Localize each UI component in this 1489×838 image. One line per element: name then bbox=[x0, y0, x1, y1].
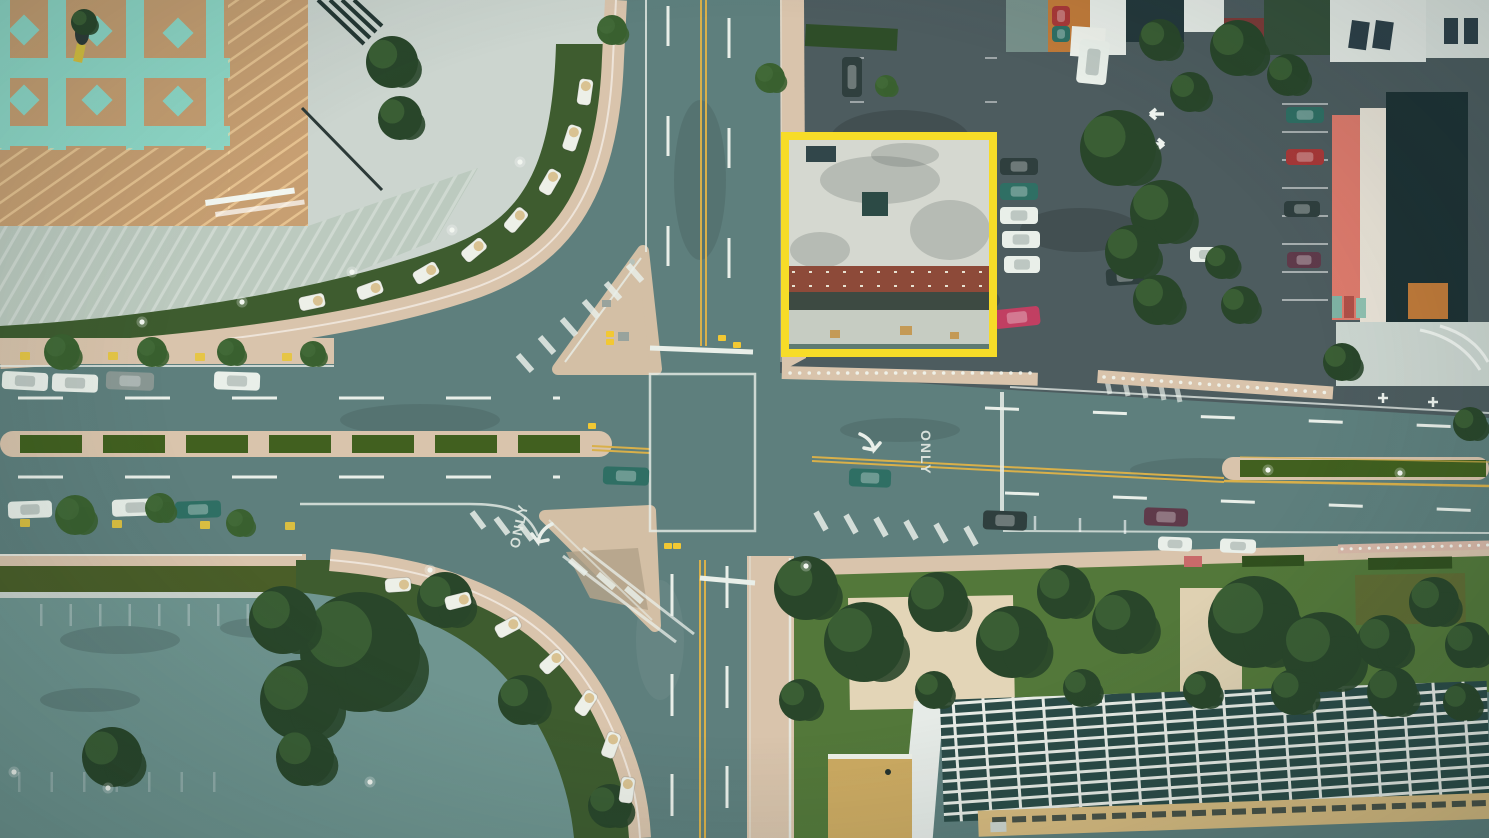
car bbox=[214, 371, 261, 391]
hedge-strip bbox=[0, 566, 300, 592]
curb-marker bbox=[20, 519, 30, 527]
walkway-canopy bbox=[385, 577, 412, 593]
traffic-signal bbox=[606, 331, 614, 337]
red-pavement-patch bbox=[1184, 556, 1202, 567]
car bbox=[1286, 107, 1324, 123]
car bbox=[842, 57, 862, 97]
light-pole bbox=[425, 565, 436, 576]
curb-marker bbox=[108, 352, 118, 360]
car bbox=[983, 510, 1028, 531]
tree bbox=[1445, 622, 1489, 668]
traffic-signal bbox=[673, 543, 681, 549]
light-pole bbox=[347, 267, 358, 278]
utility-box bbox=[602, 300, 611, 307]
car bbox=[1076, 39, 1110, 86]
traffic-signal bbox=[606, 339, 614, 345]
car bbox=[1000, 207, 1038, 224]
car bbox=[849, 468, 892, 487]
curb-marker bbox=[285, 522, 295, 530]
car bbox=[1052, 6, 1070, 26]
roof-structure bbox=[806, 146, 836, 162]
curb-marker bbox=[20, 352, 30, 360]
curb-marker bbox=[195, 353, 205, 361]
hedge bbox=[1368, 557, 1452, 570]
median-hedges bbox=[16, 435, 592, 453]
walkway-canopy bbox=[618, 776, 635, 804]
light-pole bbox=[237, 297, 248, 308]
light-pole bbox=[9, 767, 20, 778]
shadow-band bbox=[788, 292, 992, 310]
car bbox=[1000, 158, 1038, 175]
light-pole bbox=[515, 157, 526, 168]
facade-tiles bbox=[1332, 296, 1366, 318]
orange-roof-section bbox=[1408, 283, 1448, 319]
walk-edge bbox=[0, 592, 300, 598]
traffic-signal bbox=[733, 342, 741, 348]
walkway-canopy bbox=[576, 78, 593, 106]
traffic-signal bbox=[588, 423, 596, 429]
tan-building bbox=[828, 754, 912, 838]
car bbox=[1002, 231, 1040, 248]
curb-marker bbox=[282, 353, 292, 361]
car bbox=[2, 371, 49, 391]
car bbox=[1144, 507, 1189, 527]
car bbox=[1158, 536, 1192, 551]
roof-structure bbox=[862, 192, 888, 216]
lower-roof bbox=[788, 310, 992, 348]
light-pole bbox=[447, 225, 458, 236]
south-sidewalk bbox=[0, 554, 306, 568]
highlighted-building bbox=[788, 138, 992, 350]
light-pole bbox=[801, 561, 812, 572]
light-pole bbox=[1395, 468, 1406, 479]
median-hedge bbox=[1240, 460, 1486, 477]
only-road-marking: ONLY bbox=[918, 430, 934, 476]
traffic-signal bbox=[718, 335, 726, 341]
curb-marker bbox=[112, 520, 122, 528]
utility-box bbox=[618, 332, 629, 341]
car bbox=[1286, 149, 1324, 165]
aerial-scene: ONLY ONLY bbox=[0, 0, 1489, 838]
light-pole bbox=[1263, 465, 1274, 476]
car bbox=[106, 371, 155, 391]
light-pole bbox=[137, 317, 148, 328]
light-pole bbox=[365, 777, 376, 788]
hedge bbox=[1242, 555, 1304, 567]
car bbox=[1052, 26, 1070, 42]
car bbox=[1287, 252, 1321, 268]
car bbox=[175, 500, 222, 519]
car bbox=[8, 500, 53, 519]
car bbox=[1284, 201, 1320, 217]
car bbox=[1004, 256, 1040, 273]
aerial-photo-screenshot: ONLY ONLY bbox=[0, 0, 1489, 838]
brick-band bbox=[788, 266, 992, 292]
car bbox=[1220, 538, 1256, 553]
car bbox=[603, 466, 650, 486]
traffic-signal bbox=[664, 543, 672, 549]
light-pole bbox=[103, 783, 114, 794]
car bbox=[52, 373, 99, 393]
car bbox=[1000, 183, 1038, 200]
rooftop-unit bbox=[990, 822, 1006, 833]
curb-marker bbox=[200, 521, 210, 529]
